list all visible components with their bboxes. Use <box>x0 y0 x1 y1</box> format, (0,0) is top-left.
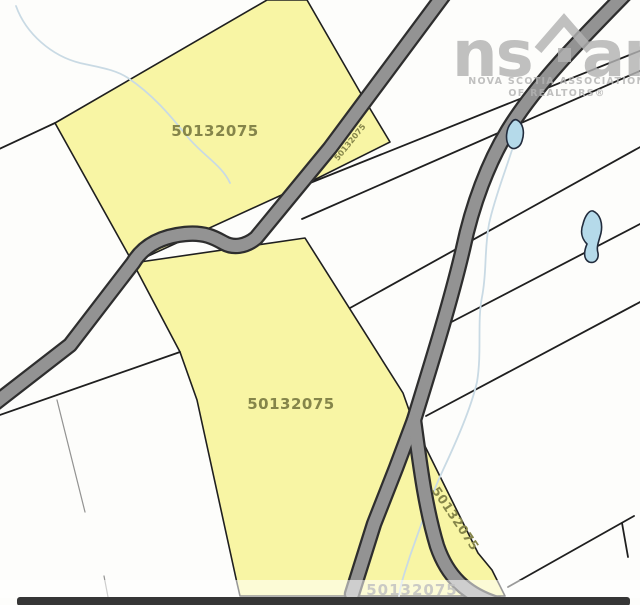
nsar-house-icon <box>558 48 571 62</box>
nsar-caption-line2: OF REALTORS® <box>508 88 605 99</box>
nsar-caption-line1: NOVA SCOTIA ASSOCIATION <box>468 76 640 87</box>
parcel-label-middle: 50132075 <box>247 395 335 413</box>
parcel-map-viewport[interactable]: 50132075 50132075 50132075 50132075 ns a… <box>0 0 640 605</box>
boundary-line-se-1 <box>508 516 634 587</box>
pond-large <box>582 211 602 263</box>
boundary-line-nw <box>0 123 55 150</box>
bottom-scale-bar <box>17 597 630 605</box>
bottom-translucent-band <box>0 580 640 598</box>
boundary-line-se-2 <box>622 523 628 557</box>
parcel-label-bottom: 50132075 <box>366 581 458 599</box>
parcel-label-top: 50132075 <box>171 122 259 140</box>
nsar-watermark-logo: ns ar NOVA SCOTIA ASSOCIATION OF REALTOR… <box>452 18 640 99</box>
boundary-line-faint-1 <box>57 400 85 512</box>
parcel-map[interactable]: 50132075 50132075 50132075 50132075 ns a… <box>0 0 640 605</box>
